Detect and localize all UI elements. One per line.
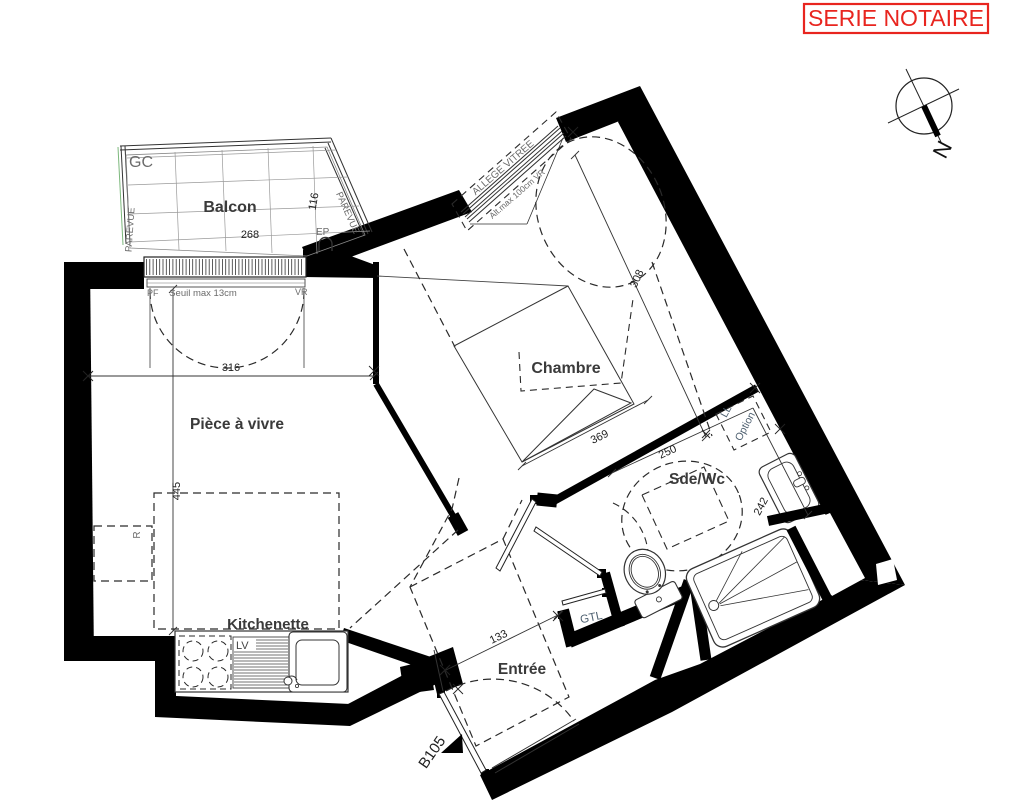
svg-text:Seuil max 13cm: Seuil max 13cm [169,288,237,299]
svg-text:SERIE NOTAIRE: SERIE NOTAIRE [808,5,984,31]
svg-text:Sde/Wc: Sde/Wc [669,471,725,488]
svg-text:R: R [132,531,143,538]
svg-text:Chambre: Chambre [531,360,600,377]
svg-text:Balcon: Balcon [203,199,256,216]
svg-text:EP: EP [316,227,330,238]
svg-text:GC: GC [129,154,153,171]
svg-text:268: 268 [241,229,259,241]
svg-text:Entrée: Entrée [498,661,547,678]
svg-text:Pièce à vivre: Pièce à vivre [190,416,284,433]
svg-text:445: 445 [171,482,183,500]
svg-text:Kitchenette: Kitchenette [227,616,309,633]
svg-text:VR: VR [295,287,308,297]
svg-text:316: 316 [222,362,240,374]
svg-text:LV: LV [236,640,249,652]
svg-text:PF: PF [147,288,159,298]
